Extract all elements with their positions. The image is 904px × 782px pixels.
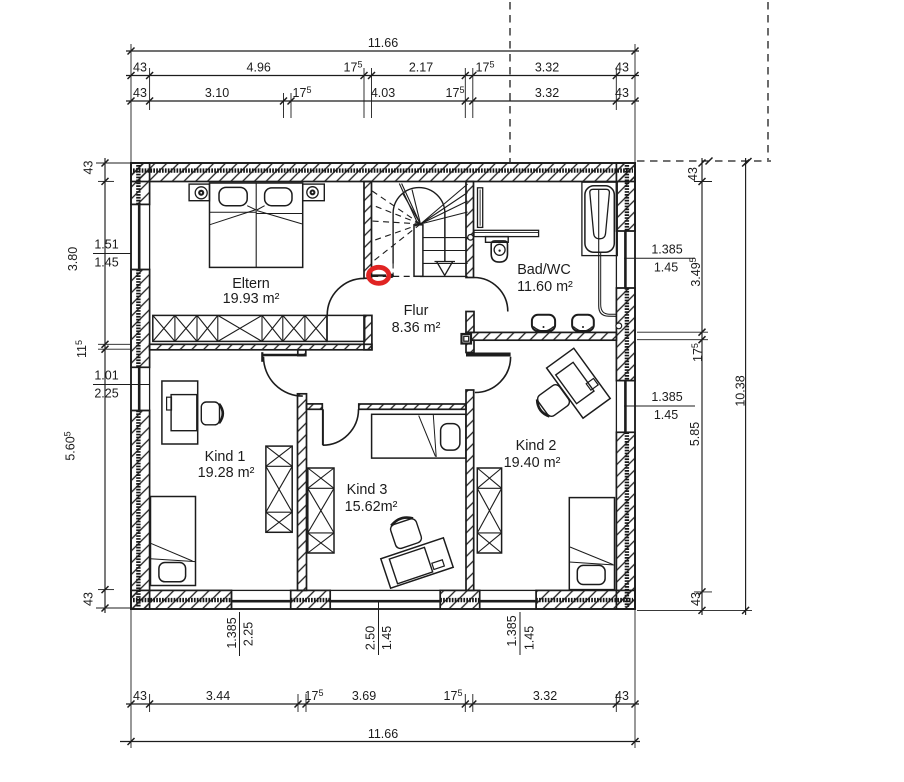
svg-text:43: 43 [686,167,700,181]
svg-text:43: 43 [82,592,96,606]
svg-text:19.28 m²: 19.28 m² [198,465,255,481]
svg-text:4.96: 4.96 [247,61,271,75]
svg-text:Kind 1: Kind 1 [205,449,246,465]
svg-text:1.45: 1.45 [523,626,537,650]
svg-text:43: 43 [82,161,96,175]
svg-text:3.10: 3.10 [205,86,229,100]
svg-text:8.36 m²: 8.36 m² [392,320,441,336]
svg-text:Kind 3: Kind 3 [347,482,388,498]
svg-text:2.25: 2.25 [242,622,256,646]
svg-text:3.32: 3.32 [535,61,559,75]
svg-text:43: 43 [615,86,629,100]
svg-text:11.66: 11.66 [368,727,398,741]
svg-text:Kind 2: Kind 2 [516,438,557,454]
svg-text:2.50: 2.50 [364,626,378,650]
svg-text:1.45: 1.45 [380,626,394,650]
svg-text:11.66: 11.66 [368,36,398,50]
svg-text:10.38: 10.38 [734,375,748,406]
svg-text:1.385: 1.385 [651,390,682,404]
svg-text:Eltern: Eltern [232,276,270,292]
svg-text:43: 43 [133,86,147,100]
svg-text:3.44: 3.44 [206,689,230,703]
svg-text:43: 43 [689,592,703,606]
svg-text:1.45: 1.45 [654,408,678,422]
svg-text:1.385: 1.385 [505,615,519,646]
svg-text:Flur: Flur [404,303,429,319]
svg-text:19.40 m²: 19.40 m² [504,455,561,471]
svg-text:1.51: 1.51 [94,238,118,252]
svg-text:5.85: 5.85 [688,422,702,446]
svg-text:1.45: 1.45 [94,256,118,270]
svg-text:3.32: 3.32 [535,86,559,100]
svg-text:3.80: 3.80 [66,247,80,271]
svg-text:19.93 m²: 19.93 m² [223,291,280,307]
svg-text:43: 43 [133,689,147,703]
svg-text:1.385: 1.385 [225,617,239,648]
svg-text:43: 43 [615,61,629,75]
svg-text:43: 43 [615,689,629,703]
svg-text:1.01: 1.01 [94,369,118,383]
svg-text:1.385: 1.385 [651,242,682,256]
svg-text:11.60 m²: 11.60 m² [517,279,573,295]
svg-text:43: 43 [133,61,147,75]
svg-text:3.69: 3.69 [352,689,376,703]
svg-text:2.25: 2.25 [94,387,118,401]
svg-text:1.45: 1.45 [654,260,678,274]
svg-text:2.17: 2.17 [409,61,433,75]
svg-text:4.03: 4.03 [371,86,395,100]
svg-text:3.32: 3.32 [533,689,557,703]
svg-text:15.62m²: 15.62m² [345,499,398,515]
svg-text:Bad/WC: Bad/WC [517,262,571,278]
